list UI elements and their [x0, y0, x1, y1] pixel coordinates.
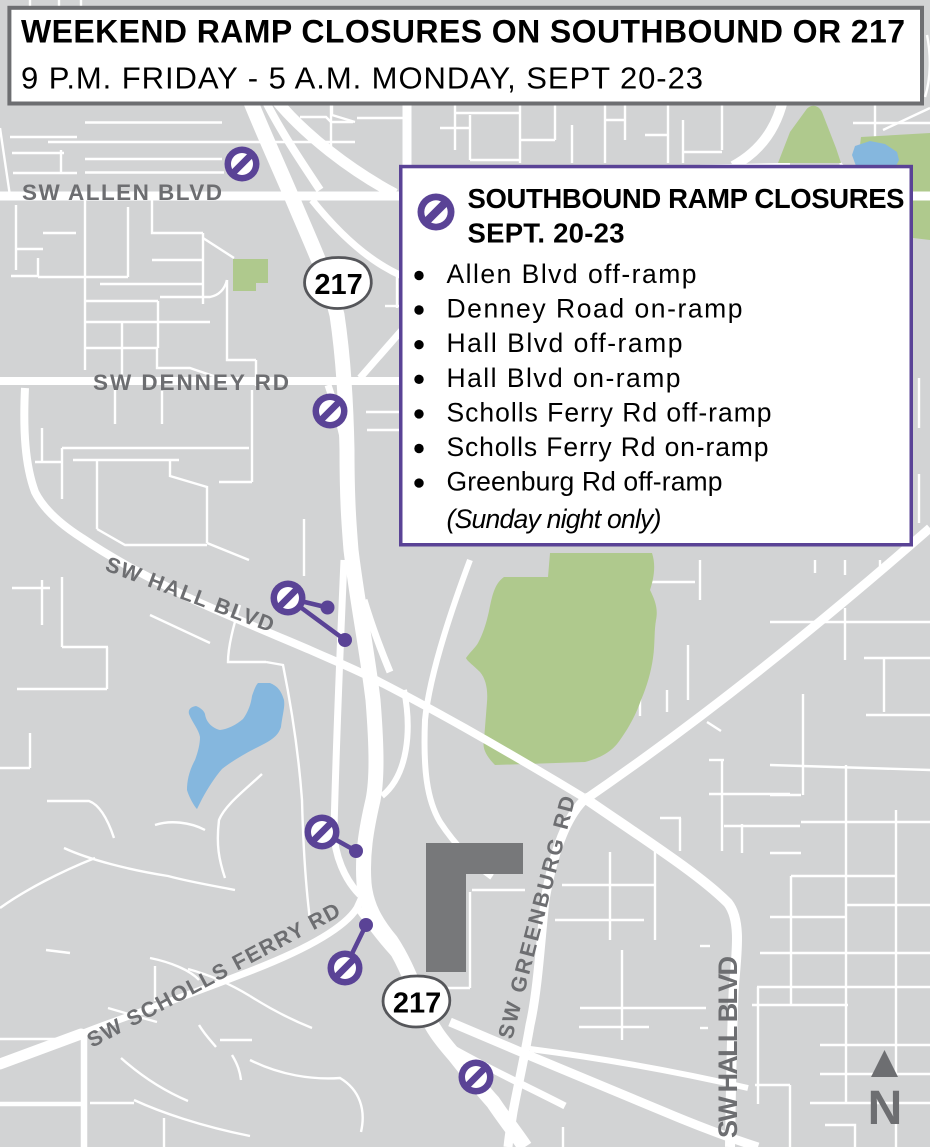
svg-text:Greenburg Rd off-ramp: Greenburg Rd off-ramp	[447, 467, 723, 497]
svg-text:217: 217	[314, 269, 362, 301]
svg-text:SW DENNEY RD: SW DENNEY RD	[93, 370, 289, 395]
svg-text:Hall Blvd on-ramp: Hall Blvd on-ramp	[447, 363, 681, 393]
svg-text:N: N	[868, 1082, 903, 1135]
svg-text:Denney Road on-ramp: Denney Road on-ramp	[447, 294, 743, 324]
svg-text:Scholls Ferry Rd off-ramp: Scholls Ferry Rd off-ramp	[447, 397, 772, 427]
svg-text:SOUTHBOUND RAMP CLOSURES: SOUTHBOUND RAMP CLOSURES	[468, 183, 905, 214]
svg-text:Scholls Ferry Rd on-ramp: Scholls Ferry Rd on-ramp	[447, 432, 769, 462]
svg-text:217: 217	[393, 988, 441, 1020]
svg-text:(Sunday night only): (Sunday night only)	[447, 504, 662, 534]
svg-text:9 P.M. FRIDAY - 5 A.M. MONDAY,: 9 P.M. FRIDAY - 5 A.M. MONDAY, SEPT 20-2…	[21, 61, 703, 96]
svg-text:SEPT. 20-23: SEPT. 20-23	[468, 218, 625, 249]
svg-text:SW HALL BLVD: SW HALL BLVD	[713, 956, 743, 1138]
svg-text:SW ALLEN BLVD: SW ALLEN BLVD	[22, 180, 222, 205]
svg-text:Allen Blvd off-ramp: Allen Blvd off-ramp	[447, 259, 697, 289]
svg-text:Hall Blvd off-ramp: Hall Blvd off-ramp	[447, 328, 683, 358]
svg-text:WEEKEND RAMP CLOSURES ON SOUTH: WEEKEND RAMP CLOSURES ON SOUTHBOUND OR 2…	[21, 14, 905, 50]
